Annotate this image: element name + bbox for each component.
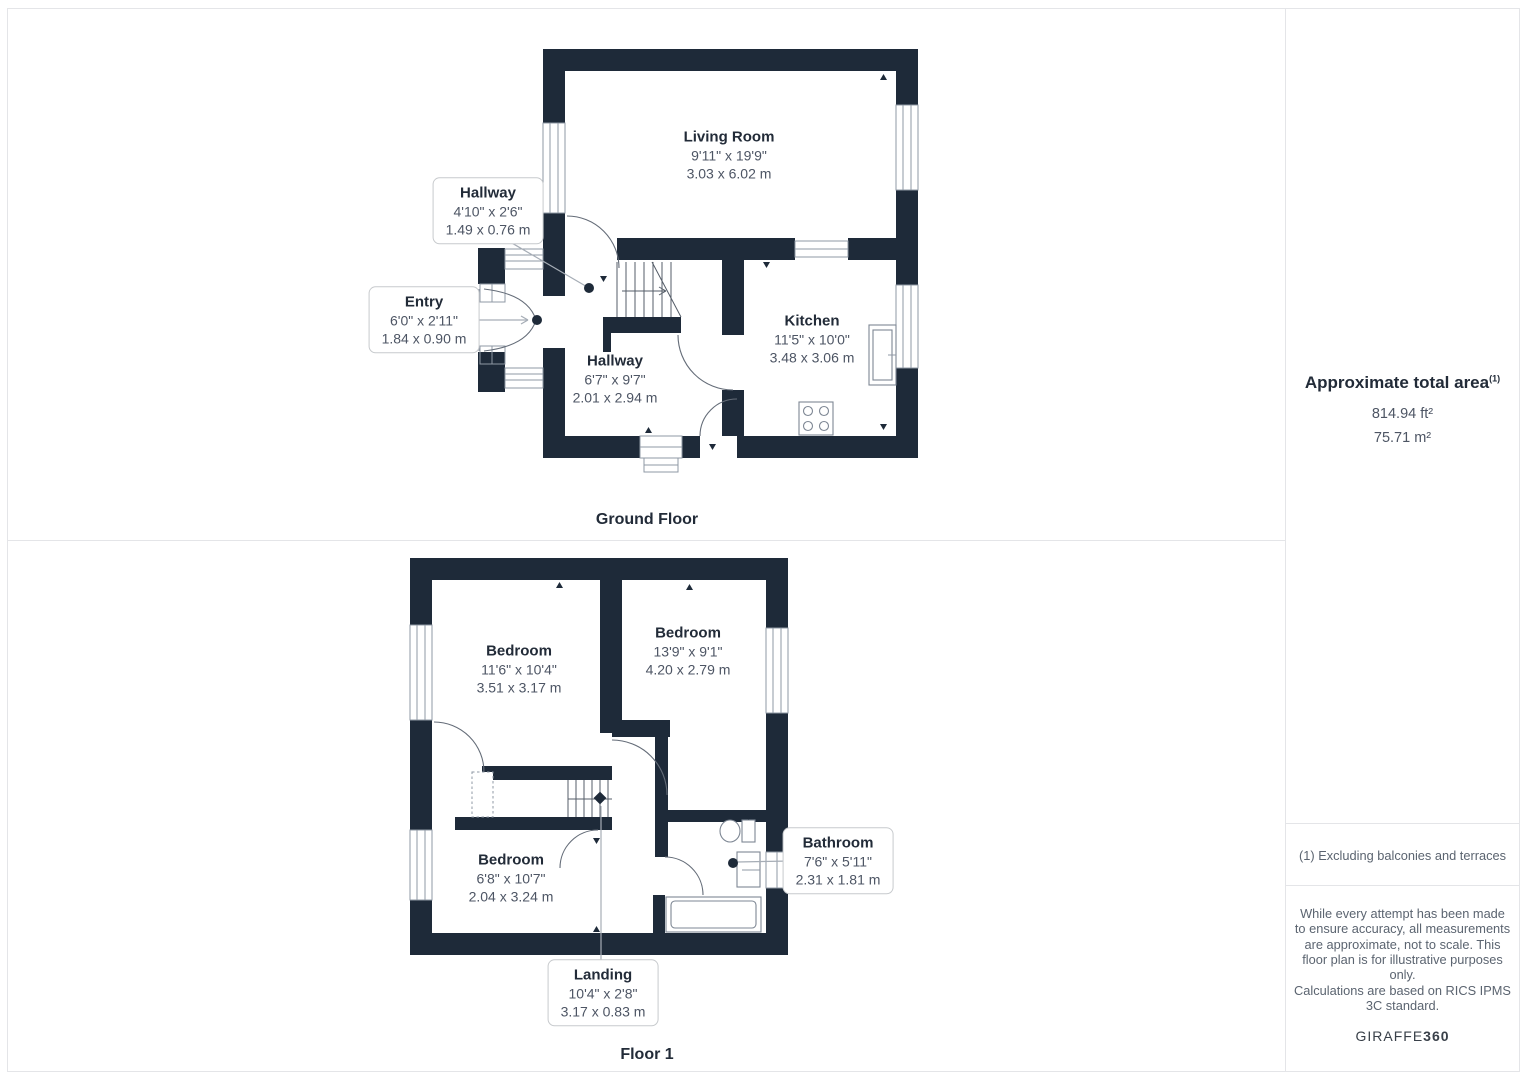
room-name: Landing [561,966,646,983]
room-dims-imperial: 10'4" x 2'8" [561,986,646,1002]
room-name: Bathroom [796,834,881,851]
camera-dot[interactable] [728,858,738,868]
room-label-living-room: Living Room 9'11" x 19'9" 3.03 x 6.02 m [684,128,775,181]
room-label-bedroom-right: Bedroom 13'9" x 9'1" 4.20 x 2.79 m [646,624,731,677]
room-dims-metric: 2.04 x 3.24 m [469,889,554,905]
room-name: Hallway [573,352,658,369]
room-dims-metric: 1.49 x 0.76 m [446,222,531,238]
window [410,830,432,900]
total-area-block: Approximate total area(1) 814.94 ft² 75.… [1285,373,1520,446]
room-dims-metric: 2.01 x 2.94 m [573,390,658,406]
room-name: Living Room [684,128,775,145]
brand-name: GIRAFFE [1355,1028,1423,1044]
footnote-marker: (1) [1489,373,1500,383]
stairs [617,262,681,317]
total-area-metric: 75.71 m² [1285,430,1520,446]
room-label-hallway: Hallway 6'7" x 9'7" 2.01 x 2.94 m [573,352,658,405]
brand-number: 360 [1423,1028,1449,1044]
floors-divider [7,540,1285,541]
room-dims-imperial: 4'10" x 2'6" [446,204,531,220]
sidebar-divider-top [1285,823,1520,824]
room-dims-imperial: 11'5" x 10'0" [770,332,855,348]
callout-entry: Entry 6'0" x 2'11" 1.84 x 0.90 m [369,286,480,353]
window [795,241,848,257]
room-dims-imperial: 6'8" x 10'7" [469,871,554,887]
door-arc [567,216,619,268]
room-dims-metric: 1.84 x 0.90 m [382,331,467,347]
window [896,285,918,368]
disclaimer-standard: Calculations are based on RICS IPMS 3C s… [1285,983,1520,1014]
room-dims-imperial: 6'7" x 9'7" [573,372,658,388]
leader-line [473,316,528,324]
window [410,625,432,720]
room-label-bedroom-left: Bedroom 11'6" x 10'4" 3.51 x 3.17 m [477,642,562,695]
toilet-icon [720,820,755,842]
total-area-title-text: Approximate total area [1305,373,1489,392]
door-arc [560,830,598,868]
room-dims-imperial: 6'0" x 2'11" [382,313,467,329]
sidebar-divider-bottom [1285,885,1520,886]
room-dims-imperial: 7'6" x 5'11" [796,854,881,870]
room-dims-metric: 4.20 x 2.79 m [646,662,731,678]
room-dims-metric: 3.17 x 0.83 m [561,1004,646,1020]
room-name: Kitchen [770,312,855,329]
room-name: Hallway [446,184,531,201]
floor1-plan [410,558,791,963]
room-label-bedroom-bottom: Bedroom 6'8" x 10'7" 2.04 x 3.24 m [469,851,554,904]
window [543,123,565,213]
room-name: Bedroom [477,642,562,659]
window [896,105,918,190]
room-dims-imperial: 13'9" x 9'1" [646,644,731,660]
room-dims-metric: 2.31 x 1.81 m [796,872,881,888]
camera-dot[interactable] [584,283,594,293]
kitchen-hob-icon [799,402,833,435]
giraffe360-logo: GIRAFFE360 [1285,1028,1520,1044]
door-arc [665,857,703,895]
room-dims-metric: 3.48 x 3.06 m [770,350,855,366]
floorplan-page: Living Room 9'11" x 19'9" 3.03 x 6.02 m … [0,0,1527,1080]
total-area-title: Approximate total area(1) [1285,373,1520,393]
kitchen-sink-icon [869,325,896,385]
callout-hallway-small: Hallway 4'10" x 2'6" 1.49 x 0.76 m [433,177,544,244]
room-name: Bedroom [646,624,731,641]
room-name: Bedroom [469,851,554,868]
floor-1-caption: Floor 1 [620,1046,673,1064]
total-area-imperial: 814.94 ft² [1285,406,1520,422]
door-arc [434,722,484,772]
camera-dot[interactable] [594,792,607,805]
window [766,628,788,713]
door-arc [678,335,733,390]
floor1-outer-walls [410,558,788,955]
room-dims-imperial: 9'11" x 19'9" [684,148,775,164]
ground-floor-plan [473,49,918,472]
sink-icon [737,852,760,887]
room-name: Entry [382,293,467,310]
bathtub-icon [666,897,761,932]
camera-dot[interactable] [532,315,542,325]
callout-bathroom: Bathroom 7'6" x 5'11" 2.31 x 1.81 m [783,827,894,894]
room-label-kitchen: Kitchen 11'5" x 10'0" 3.48 x 3.06 m [770,312,855,365]
room-dims-metric: 3.03 x 6.02 m [684,166,775,182]
callout-landing: Landing 10'4" x 2'8" 3.17 x 0.83 m [548,959,659,1026]
disclaimer-accuracy: While every attempt has been made to ens… [1285,906,1520,983]
wardrobe [472,772,493,817]
area-footnote: (1) Excluding balconies and terraces [1285,848,1520,863]
room-dims-imperial: 11'6" x 10'4" [477,662,562,678]
window [640,436,682,472]
room-dims-metric: 3.51 x 3.17 m [477,680,562,696]
ground-floor-caption: Ground Floor [596,511,698,529]
